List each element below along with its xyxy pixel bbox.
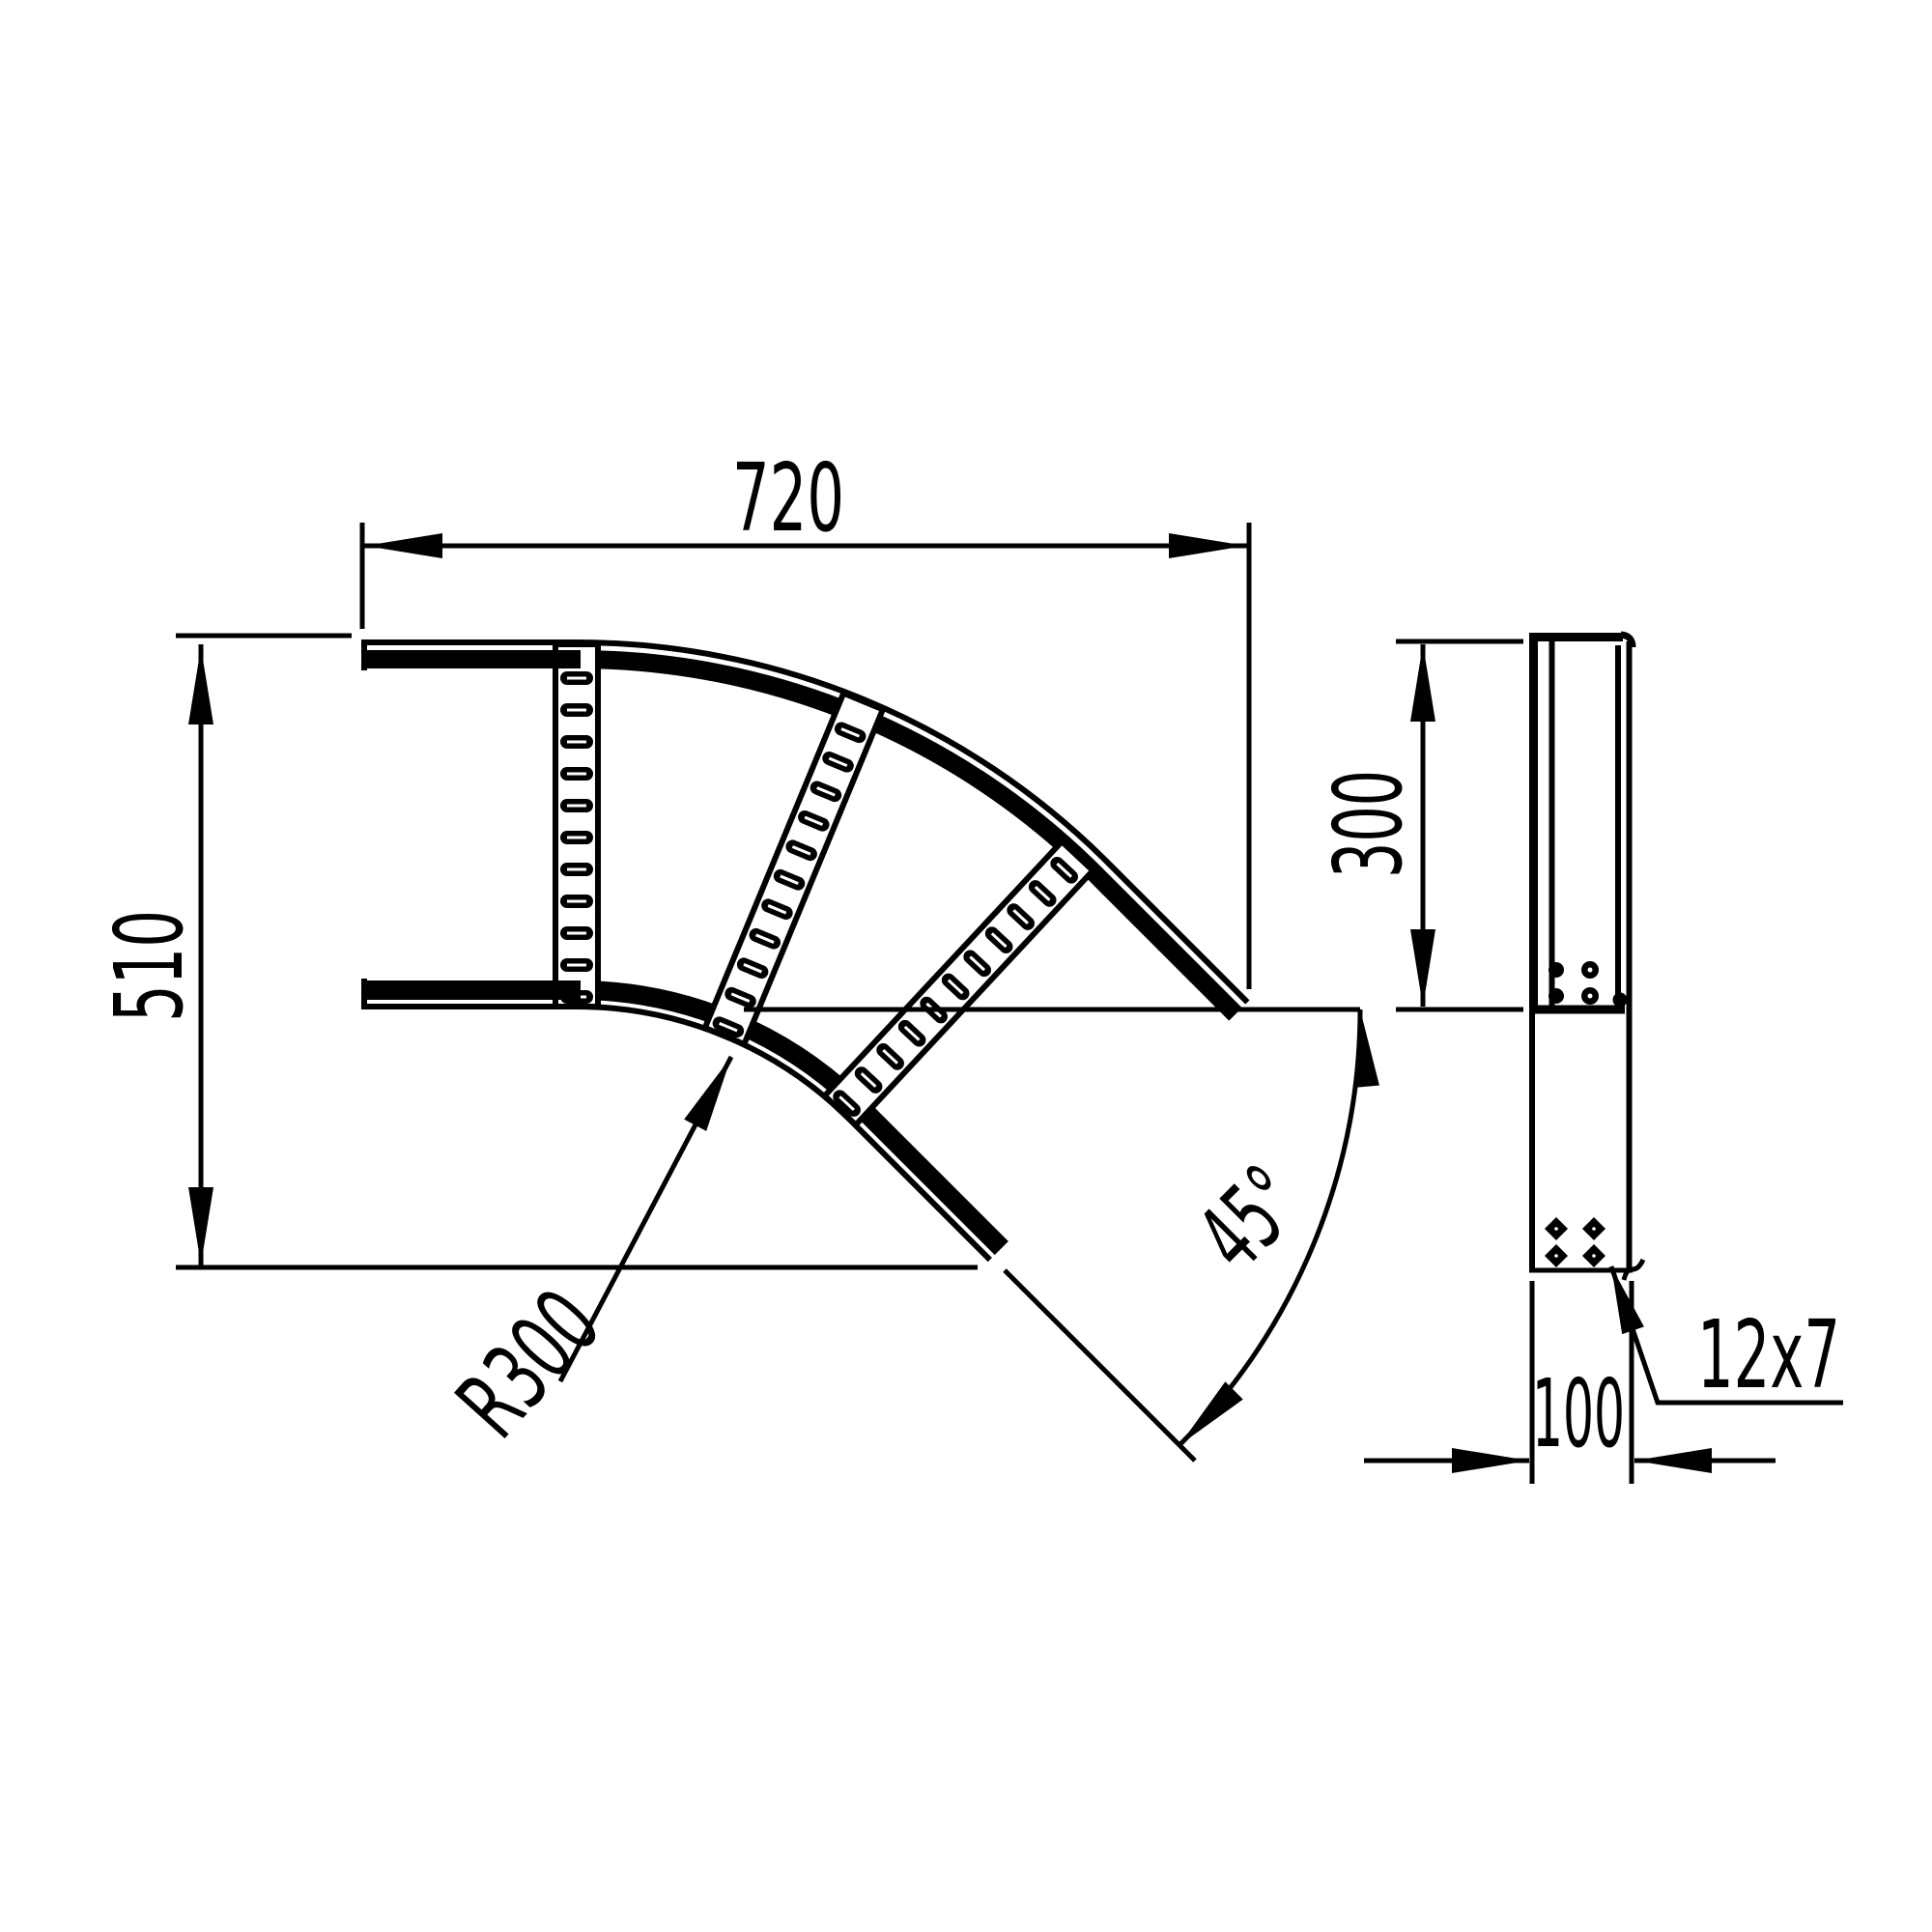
dim-profile-width-100: 100 bbox=[1532, 1359, 1625, 1468]
dim-100-arrow-left bbox=[1452, 1448, 1529, 1473]
dim-height-510: 510 bbox=[95, 910, 204, 1022]
slot-leader-arrow bbox=[1611, 1266, 1644, 1334]
dim-width-720: 720 bbox=[732, 443, 844, 553]
dim-bend-radius-r300: R300 bbox=[437, 1269, 621, 1458]
dim-300-arrow-down bbox=[1410, 929, 1435, 1007]
side-hole-filled bbox=[1548, 988, 1564, 1004]
drawing-canvas: 720 510 R300 45° 300 100 12x7 bbox=[0, 0, 1932, 1932]
ladder-rung bbox=[705, 694, 883, 1044]
side-right-wall-foot bbox=[1613, 993, 1628, 1008]
dim-510-arrow-down bbox=[188, 1187, 213, 1264]
side-hole-pinhole bbox=[1554, 1227, 1558, 1231]
side-hole-ring-center bbox=[1588, 994, 1593, 999]
dim-rail-width-300: 300 bbox=[1314, 770, 1423, 878]
technical-drawing: 720 510 R300 45° 300 100 12x7 bbox=[0, 0, 1932, 1932]
dim-720-arrow-left bbox=[365, 533, 442, 558]
radius-arrow bbox=[684, 1057, 731, 1131]
dim-720-arrow-right bbox=[1169, 533, 1246, 558]
side-hole-pinhole bbox=[1592, 1227, 1596, 1231]
side-hole-pinhole bbox=[1592, 1254, 1596, 1258]
dim-510-arrow-up bbox=[188, 647, 213, 724]
side-hole-filled bbox=[1548, 962, 1564, 978]
side-hole-pinhole bbox=[1554, 1254, 1558, 1258]
side-view-profile bbox=[1529, 633, 1643, 1280]
dim-slot-size-12x7: 12x7 bbox=[1697, 1300, 1840, 1409]
side-hole-ring-center bbox=[1588, 968, 1593, 973]
ladder-rung bbox=[825, 841, 1094, 1124]
dim-300-arrow-up bbox=[1410, 644, 1435, 722]
dim-100-arrow-right bbox=[1634, 1448, 1712, 1473]
angle-ref-line-45 bbox=[1005, 1270, 1195, 1461]
plan-view-ladder bbox=[362, 639, 1247, 1260]
rung-body bbox=[555, 644, 598, 1007]
angle-arrow-bottom bbox=[1179, 1381, 1243, 1445]
ladder-rung bbox=[555, 644, 598, 1007]
outer-rail-band-arc bbox=[577, 660, 1236, 1014]
